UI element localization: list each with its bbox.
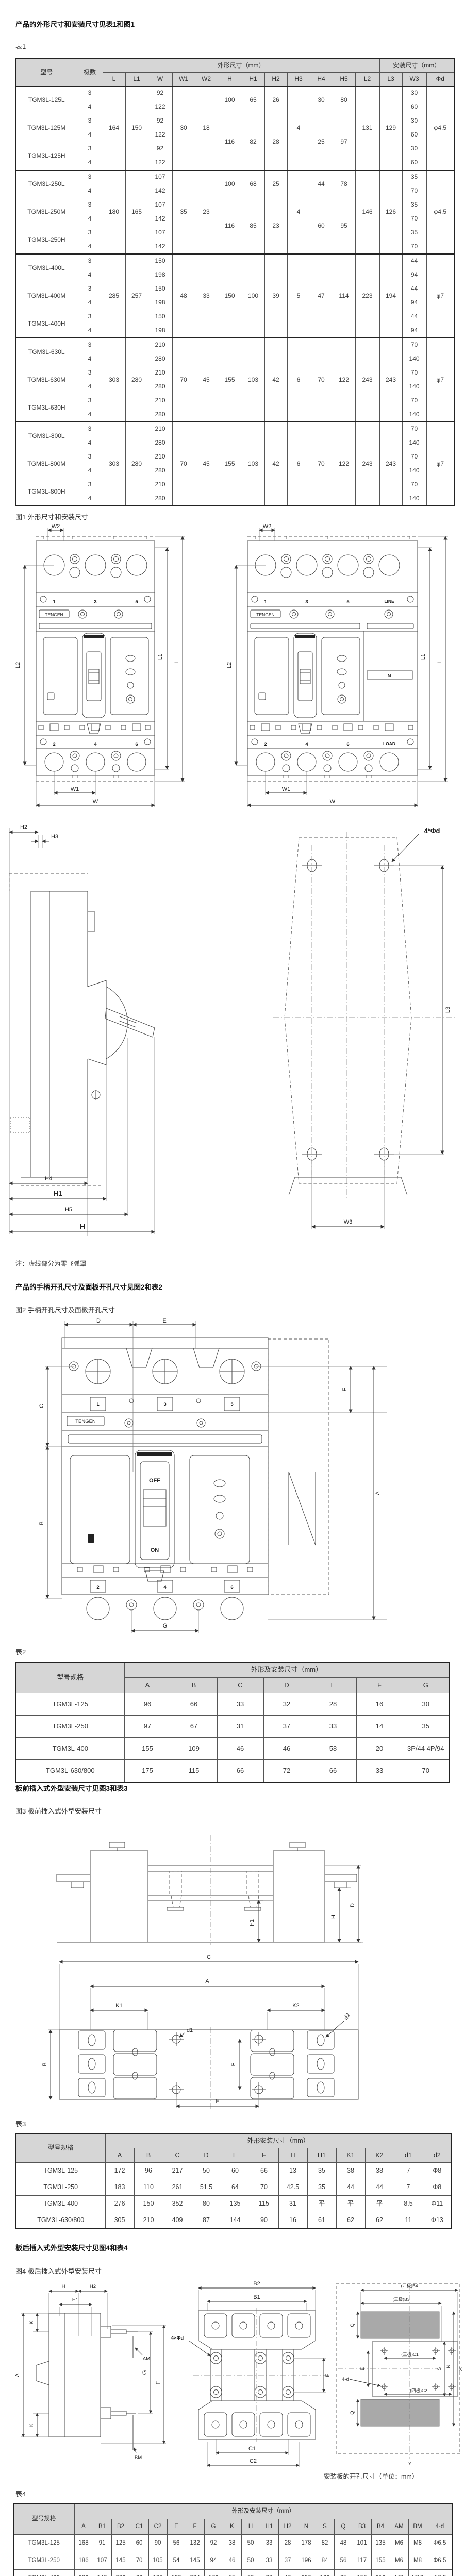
table-cell: 13 xyxy=(278,2163,307,2179)
table-cell: 164 xyxy=(103,86,125,170)
center-lines xyxy=(273,832,456,1200)
table-cell: 198 xyxy=(148,324,172,338)
table-cell: 66 xyxy=(217,1760,263,1783)
table-cell: 183 xyxy=(105,2179,134,2196)
dim-label-b: B xyxy=(42,2062,48,2066)
table-cell: 125 xyxy=(111,2535,130,2552)
handle-on-label: ON xyxy=(151,1547,159,1553)
axis-label-x: X xyxy=(459,2367,462,2372)
table-cell: Φ13 xyxy=(423,2212,452,2229)
table-header-cell: L3 xyxy=(379,73,402,87)
table-cell: 70 xyxy=(403,1760,449,1783)
table-cell: 210 xyxy=(371,2570,390,2576)
leader-lines xyxy=(134,2348,142,2453)
table-cell: 165 xyxy=(125,170,148,254)
table-cell: 4 xyxy=(77,492,103,506)
table-cell: 140 xyxy=(402,464,426,478)
table4-label: 表4 xyxy=(15,2488,26,2498)
table-cell: 11 xyxy=(394,2212,423,2229)
table-cell: TGM3L-400 xyxy=(13,2570,74,2576)
table-cell: M8 xyxy=(390,2570,408,2576)
table-cell: 210 xyxy=(148,422,172,436)
pole-number: 4 xyxy=(94,742,97,748)
figure3-front-plugin: H1 H D C A K1 K2 B F E d1 d2 xyxy=(21,1824,382,2112)
handle-off-label: OFF xyxy=(149,1478,160,1484)
table-header-cell: 型号规格 xyxy=(13,2503,74,2535)
table-cell: 70 xyxy=(402,212,426,226)
table-cell: 20 xyxy=(356,1738,403,1760)
dim-label-c1-3p: (三极)C1 xyxy=(401,2352,419,2357)
table-header-cell: B1 xyxy=(93,2519,111,2535)
pole-number: 3 xyxy=(305,599,308,605)
table-cell: 155 xyxy=(218,422,242,506)
table-cell: 35 xyxy=(172,170,195,254)
table-cell: 80 xyxy=(192,2196,221,2212)
table-cell: 80 xyxy=(333,86,355,114)
table-header-cell: H1 xyxy=(242,73,264,87)
table-cell: 60 xyxy=(241,2570,260,2576)
dim-label-w: W xyxy=(330,799,336,805)
dim-label-q: Q xyxy=(350,2411,355,2414)
table-header-cell: W3 xyxy=(402,73,426,87)
table-cell: 92 xyxy=(148,114,172,128)
table-cell: 46 xyxy=(217,1738,263,1760)
table-cell: 70 xyxy=(250,2179,278,2196)
table-header-cell: BM xyxy=(408,2519,427,2535)
figure4-labels: H H2 H1 A K K AM G F BM B2 B1 4×Φd E C1 … xyxy=(14,2281,462,2467)
table-cell: 70 xyxy=(402,338,426,352)
table-cell: 4 xyxy=(77,464,103,478)
dim-label-b1: B1 xyxy=(253,2294,260,2300)
dim-label-e: E xyxy=(162,1318,166,1324)
extension-lines xyxy=(48,1865,363,2108)
dim-label-f: F xyxy=(155,2381,161,2384)
table-cell: 25 xyxy=(310,114,333,171)
dim-label-l3: L3 xyxy=(445,1007,451,1013)
table-cell: 243 xyxy=(379,422,402,506)
dim-label-w1: W1 xyxy=(71,786,79,792)
table-cell: 146 xyxy=(355,170,379,254)
table-cell: Φ8 xyxy=(423,2163,452,2179)
side-profile xyxy=(21,891,155,1177)
mounting-holes-label: 4*Φd xyxy=(424,827,440,835)
table-cell: TGM3L-400 xyxy=(16,2196,105,2212)
dimension-lines xyxy=(51,1865,358,2106)
table-cell: 38 xyxy=(260,2570,278,2576)
extension-lines xyxy=(9,828,444,1236)
table-cell: 90 xyxy=(250,2212,278,2229)
table-cell: 48 xyxy=(172,254,195,338)
brand-label: TENGEN xyxy=(75,1419,96,1425)
table-cell: 87 xyxy=(192,2212,221,2229)
table-cell: 170 xyxy=(204,2570,223,2576)
mounting-hole-pattern xyxy=(289,859,407,1195)
pole-number: 5 xyxy=(135,599,138,605)
table-cell: 70 xyxy=(172,422,195,506)
table-cell: 60 xyxy=(130,2535,148,2552)
table-cell: 58 xyxy=(310,1738,356,1760)
table-cell: 33 xyxy=(310,1716,356,1738)
panel-axes xyxy=(338,2284,438,2459)
dimension-lines xyxy=(9,832,442,1232)
section-heading-handle: 产品的手柄开孔尺寸及面板开孔尺寸见图2和表2 xyxy=(15,1281,162,1292)
table-header-cell: W xyxy=(148,73,172,87)
dim-label-h5: H5 xyxy=(65,1207,72,1213)
table-cell: 32 xyxy=(263,1693,310,1716)
table-cell: 3 xyxy=(77,338,103,352)
table-header-cell: D xyxy=(192,2148,221,2163)
table-cell: 70 xyxy=(402,240,426,255)
table-cell: 180 xyxy=(103,170,125,254)
dim-label-e: E xyxy=(325,2373,331,2377)
dim-label-c: C xyxy=(39,1404,45,1408)
table-cell: 54 xyxy=(167,2552,186,2570)
table-cell: 35 xyxy=(307,2163,336,2179)
table-cell: 196 xyxy=(297,2552,316,2570)
dim-label-h1: H1 xyxy=(72,2297,78,2303)
table-header-cell: AM xyxy=(390,2519,408,2535)
table-cell: TGM3L-125H xyxy=(16,142,77,171)
dim-label-l1: L1 xyxy=(420,654,426,660)
dim-label-b: B xyxy=(39,1521,45,1525)
table-cell: 280 xyxy=(125,338,148,422)
table-header-cell: L1 xyxy=(125,73,148,87)
table-cell: 261 xyxy=(163,2179,192,2196)
dim-label-h4: H4 xyxy=(45,1176,52,1182)
table-cell: 108 xyxy=(148,2570,167,2576)
table-cell: 45 xyxy=(195,422,218,506)
dim-label-l1: L1 xyxy=(157,654,163,660)
breaker-outline-dashed xyxy=(285,837,411,1183)
dim-label-k1: K1 xyxy=(115,2003,122,2009)
table-cell: TGM3L-125 xyxy=(13,2535,74,2552)
table-header-cell: H4 xyxy=(310,73,333,87)
table-header-cell: 型号 xyxy=(16,59,77,86)
table-cell: 39 xyxy=(264,254,287,338)
table-header-cell: K1 xyxy=(336,2148,365,2163)
handle-top-band xyxy=(84,635,104,638)
table-cell: 38 xyxy=(223,2535,241,2552)
table-header-cell: A xyxy=(74,2519,93,2535)
dim-label-w2: W2 xyxy=(52,523,60,530)
table-cell: TGM3L-125 xyxy=(16,2163,105,2179)
dim-label-l2: L2 xyxy=(15,662,21,668)
n-pole-dashed xyxy=(268,1339,329,1595)
table-cell: 33 xyxy=(260,2552,278,2570)
mounting-holes-label: 4×Φd xyxy=(171,2335,184,2341)
figure1-note: 注：虚线部分为零飞弧罩 xyxy=(15,1258,87,1268)
table-cell: 150 xyxy=(218,254,242,338)
table-cell: 92 xyxy=(148,86,172,100)
table-cell: 4 xyxy=(77,184,103,198)
pole-number: 2 xyxy=(96,1585,99,1590)
table-cell: M8 xyxy=(408,2535,427,2552)
table-cell: φ4.5 xyxy=(426,86,454,170)
table-cell: TGM3L-630L xyxy=(16,338,77,366)
table-cell: 26 xyxy=(264,86,287,114)
dim-label-w2: W2 xyxy=(263,523,272,530)
figure4-rear-plugin: H H2 H1 A K K AM G F BM B2 B1 4×Φd E C1 … xyxy=(0,2280,464,2470)
table-cell: 140 xyxy=(402,408,426,422)
table-cell: φ7 xyxy=(426,338,454,422)
dimension-table-4: 型号规格外形及安装尺寸（mm）AB1B2C1C2EFGKHH1H2NSQB3B4… xyxy=(13,2503,453,2576)
table-header-cell: B4 xyxy=(371,2519,390,2535)
neutral-label: N xyxy=(388,673,391,679)
table-cell: 94 xyxy=(402,324,426,338)
table-cell: 7 xyxy=(394,2163,423,2179)
handle-top-band xyxy=(295,635,315,638)
table-cell: 131 xyxy=(355,86,379,170)
dim-label-w1: W1 xyxy=(282,786,291,792)
table-header-cell: D xyxy=(263,1678,310,1693)
table-cell: 25 xyxy=(264,170,287,198)
table-cell: 31 xyxy=(278,2196,307,2212)
table-cell: 5 xyxy=(287,254,310,338)
table-cell: 50 xyxy=(241,2552,260,2570)
table-header-cell: B xyxy=(134,2148,163,2163)
table-cell: 44 xyxy=(336,2179,365,2196)
dim-label-f: F xyxy=(230,2062,237,2066)
table-cell: 4 xyxy=(77,212,103,226)
table-cell: 101 xyxy=(353,2535,371,2552)
table-cell: 409 xyxy=(163,2212,192,2229)
table-cell: 280 xyxy=(74,2570,93,2576)
table-cell: 28 xyxy=(264,114,287,171)
dim-label-k: K xyxy=(29,2423,35,2427)
table-cell: 150 xyxy=(125,86,148,170)
table-cell: 38 xyxy=(365,2163,394,2179)
table-cell: 122 xyxy=(148,100,172,114)
table-cell: Φ6.5 xyxy=(427,2535,453,2552)
table-cell: M6 xyxy=(390,2552,408,2570)
table-cell: φ4.5 xyxy=(426,170,454,254)
fig4-caption: 图4 板后插入式外型安装尺寸 xyxy=(15,2266,102,2276)
table-cell: 44 xyxy=(310,170,333,198)
table-cell: 51.5 xyxy=(192,2179,221,2196)
table-cell: 4 xyxy=(77,156,103,171)
table-cell: M8 xyxy=(408,2552,427,2570)
table-header-cell: H5 xyxy=(333,73,355,87)
table-cell: 30 xyxy=(402,114,426,128)
table-cell: 23 xyxy=(264,198,287,255)
table-cell: TGM3L-125L xyxy=(16,86,77,114)
table-cell: TGM3L-250 xyxy=(13,2552,74,2570)
table-cell: M6 xyxy=(390,2535,408,2552)
table-cell: 110 xyxy=(134,2179,163,2196)
table-cell: 223 xyxy=(355,254,379,338)
table-cell: 30 xyxy=(402,142,426,156)
table-cell: 46 xyxy=(263,1738,310,1760)
table-cell: 65 xyxy=(242,86,264,114)
table-cell: 33 xyxy=(217,1693,263,1716)
table-cell: 3 xyxy=(77,394,103,408)
table-cell: 116 xyxy=(218,114,242,171)
table-cell: 290 xyxy=(297,2570,316,2576)
table-cell: TGM3L-125M xyxy=(16,114,77,142)
table-cell: 30 xyxy=(403,1693,449,1716)
table-cell: 62 xyxy=(365,2212,394,2229)
fig2-caption: 图2 手柄开孔尺寸及面板开孔尺寸 xyxy=(15,1304,115,1314)
arc-cover-dashed xyxy=(36,536,418,782)
table-cell: 115 xyxy=(250,2196,278,2212)
table-cell: 115 xyxy=(171,1760,217,1783)
table-cell: 70 xyxy=(402,184,426,198)
table-cell: 33 xyxy=(195,254,218,338)
table-cell: 140 xyxy=(402,436,426,450)
table-cell: Φ11 xyxy=(423,2196,452,2212)
table-cell: 16 xyxy=(278,2212,307,2229)
dimension-lines xyxy=(25,530,445,805)
rear-plugin-side-view xyxy=(36,2313,138,2450)
table-header-cell: F xyxy=(250,2148,278,2163)
mounting-plate xyxy=(59,2030,358,2099)
table-cell: 3P/44 4P/94 xyxy=(403,1738,449,1760)
table-cell: 122 xyxy=(333,422,355,506)
table-cell: 65 xyxy=(334,2570,353,2576)
table-cell: TGM3L-800M xyxy=(16,450,77,478)
table-cell: 70 xyxy=(402,422,426,436)
breaker-front-3p xyxy=(36,541,155,775)
table-cell: 44 xyxy=(402,310,426,324)
table-cell: 56 xyxy=(167,2535,186,2552)
table-cell: 4 xyxy=(287,86,310,170)
table-cell: 23 xyxy=(195,170,218,254)
table-cell: TGM3L-800L xyxy=(16,422,77,450)
table-cell: TGM3L-630/800 xyxy=(16,1760,124,1783)
table-header-cell: H2 xyxy=(278,2519,297,2535)
table-cell: 4 xyxy=(77,352,103,366)
table-cell: 285 xyxy=(103,254,125,338)
dim-label-b4: (四极)B4 xyxy=(401,2283,418,2289)
table-cell: 168 xyxy=(74,2535,93,2552)
figure3-labels: H1 H D C A K1 K2 B F E d1 d2 xyxy=(42,1903,356,2105)
table-header-cell: W2 xyxy=(195,73,218,87)
side-view-labels: H2 H3 H4 H1 H5 H 4*Φd L3 W3 xyxy=(20,824,451,1230)
pole-number: 6 xyxy=(230,1585,233,1590)
table-cell: φ7 xyxy=(426,422,454,506)
table-cell: 96 xyxy=(124,1693,171,1716)
table-cell: 280 xyxy=(148,436,172,450)
table-header-cell: 4-d xyxy=(427,2519,453,2535)
table-cell: 243 xyxy=(355,422,379,506)
table-header-cell: H1 xyxy=(307,2148,336,2163)
table-cell: 42 xyxy=(264,338,287,422)
table-cell: 18 xyxy=(195,86,218,170)
fig4-panel-note: 安装板的开孔尺寸（单位：mm） xyxy=(324,2471,418,2481)
table-cell: TGM3L-250H xyxy=(16,226,77,255)
table-cell: 140 xyxy=(402,352,426,366)
table-cell: 305 xyxy=(105,2212,134,2229)
table-cell: 145 xyxy=(186,2552,204,2570)
table-cell: 276 xyxy=(105,2196,134,2212)
table-cell: 平 xyxy=(336,2196,365,2212)
table-header-cell: W1 xyxy=(172,73,195,87)
table-cell: 94 xyxy=(402,268,426,282)
table-cell: 144 xyxy=(221,2212,250,2229)
breaker-front xyxy=(62,1338,316,1620)
table-cell: TGM3L-400L xyxy=(16,254,77,282)
figure2-panel-cutout: D E C B F A G TENGEN OFF ON 1 3 5 2 4 6 xyxy=(21,1317,412,1637)
table-cell: TGM3L-250L xyxy=(16,170,77,198)
table-cell: 82 xyxy=(242,114,264,171)
dim-label-h2: H2 xyxy=(20,824,27,831)
table-cell: 303 xyxy=(103,422,125,506)
table-cell: 4 xyxy=(77,324,103,338)
table-cell: 116 xyxy=(218,198,242,255)
table-header-cell: 外形安装尺寸（mm） xyxy=(105,2133,452,2148)
table-cell: 132 xyxy=(186,2535,204,2552)
table-cell: 210 xyxy=(148,338,172,352)
table-cell: 62 xyxy=(336,2212,365,2229)
dim-label-h1: H1 xyxy=(249,1919,255,1926)
table-cell: 140 xyxy=(402,492,426,506)
table-header-cell: K2 xyxy=(365,2148,394,2163)
table-cell: 37 xyxy=(263,1716,310,1738)
table-header-cell: F xyxy=(356,1678,403,1693)
table-header-cell: B xyxy=(171,1678,217,1693)
table-cell: TGM3L-125 xyxy=(16,1693,124,1716)
panel-block-top xyxy=(361,2312,439,2338)
table-cell: 8.5 xyxy=(394,2196,423,2212)
pole-number: 4 xyxy=(163,1585,167,1590)
table-cell: 3 xyxy=(77,450,103,464)
din-rail-dotted xyxy=(10,1118,30,1133)
table-cell: 90 xyxy=(148,2535,167,2552)
table-cell: 61 xyxy=(307,2212,336,2229)
table-cell: 6 xyxy=(287,422,310,506)
table-cell: TGM3L-400 xyxy=(16,1738,124,1760)
table-cell: 50 xyxy=(192,2163,221,2179)
dimension-lines xyxy=(23,2291,164,2444)
table-cell: 126 xyxy=(379,170,402,254)
dim-label-s: S xyxy=(437,2367,442,2370)
table-cell: 100 xyxy=(218,86,242,114)
table-cell: TGM3L-630/800 xyxy=(16,2212,105,2229)
leader-lines xyxy=(31,834,419,862)
table-cell: 280 xyxy=(148,352,172,366)
table-cell: 84 xyxy=(316,2552,334,2570)
pole-number: 2 xyxy=(53,742,55,748)
table-cell: 107 xyxy=(148,226,172,240)
table-cell: 28 xyxy=(278,2535,297,2552)
dimension-table-3: 型号规格外形安装尺寸（mm）ABCDEFHH1K1K2d1d2TGM3L-125… xyxy=(15,2133,452,2229)
table-cell: 82 xyxy=(316,2535,334,2552)
dim-label-f: F xyxy=(342,1387,348,1391)
table-cell: 31 xyxy=(217,1716,263,1738)
table-cell: 135 xyxy=(221,2196,250,2212)
table-cell: 38 xyxy=(336,2163,365,2179)
table-cell: 217 xyxy=(163,2163,192,2179)
dimension-table-1: 型号极数外形尺寸（mm）安装尺寸（mm）LL1WW1W2HH1H2H3H4H5L… xyxy=(15,58,455,506)
table-cell: 109 xyxy=(171,1738,217,1760)
table-cell: 100 xyxy=(218,170,242,198)
table-header-cell: 安装尺寸（mm） xyxy=(379,59,454,73)
figure1-front-views: W2 L2 L1 L W2 L2 L1 L W1 W W1 W TENGEN T… xyxy=(5,523,459,811)
table-cell: 72 xyxy=(263,1760,310,1783)
dim-label-a: A xyxy=(14,2373,21,2377)
pole-number: 5 xyxy=(230,1402,234,1408)
table-cell: Φ8 xyxy=(423,2179,452,2196)
leader-lines xyxy=(350,2379,380,2386)
table-cell: 159 xyxy=(353,2570,371,2576)
table-cell: 3 xyxy=(77,422,103,436)
figure1-side-view: H2 H3 H4 H1 H5 H 4*Φd L3 W3 xyxy=(0,817,464,1255)
table-cell: 186 xyxy=(74,2552,93,2570)
table-cell: 44 xyxy=(402,254,426,268)
section-heading-rear-plugin: 板后插入式外型安装尺寸见图4和表4 xyxy=(15,2242,128,2252)
table-cell: 210 xyxy=(148,366,172,380)
table-cell: 33 xyxy=(356,1760,403,1783)
